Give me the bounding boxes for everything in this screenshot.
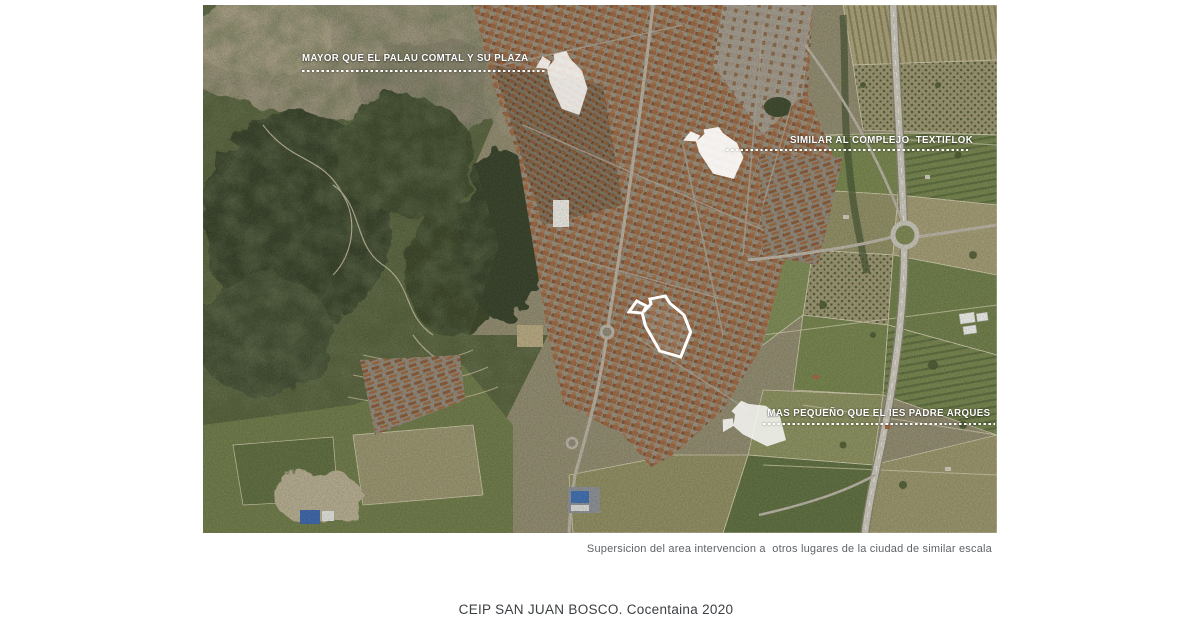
leader-line-ies [763,423,995,425]
leader-line-palau [302,70,545,72]
annotation-label-palau: MAYOR QUE EL PALAU COMTAL Y SU PLAZA [302,53,529,65]
annotation-label-textiflok: SIMILAR AL COMPLEJO TEXTIFLOK [790,135,973,147]
presentation-slide: MAYOR QUE EL PALAU COMTAL Y SU PLAZA SIM… [0,0,1200,627]
leader-line-textiflok [726,149,968,151]
map-figure: MAYOR QUE EL PALAU COMTAL Y SU PLAZA SIM… [203,5,997,533]
annotation-label-ies: MAS PEQUEÑO QUE EL IES PADRE ARQUES [768,408,991,420]
slide-title: CEIP SAN JUAN BOSCO. Cocentaina 2020 [0,602,1192,618]
figure-caption: Supersicion del area intervencion a otro… [587,543,992,556]
photo-grain-light [203,5,997,533]
satellite-map [203,5,997,533]
